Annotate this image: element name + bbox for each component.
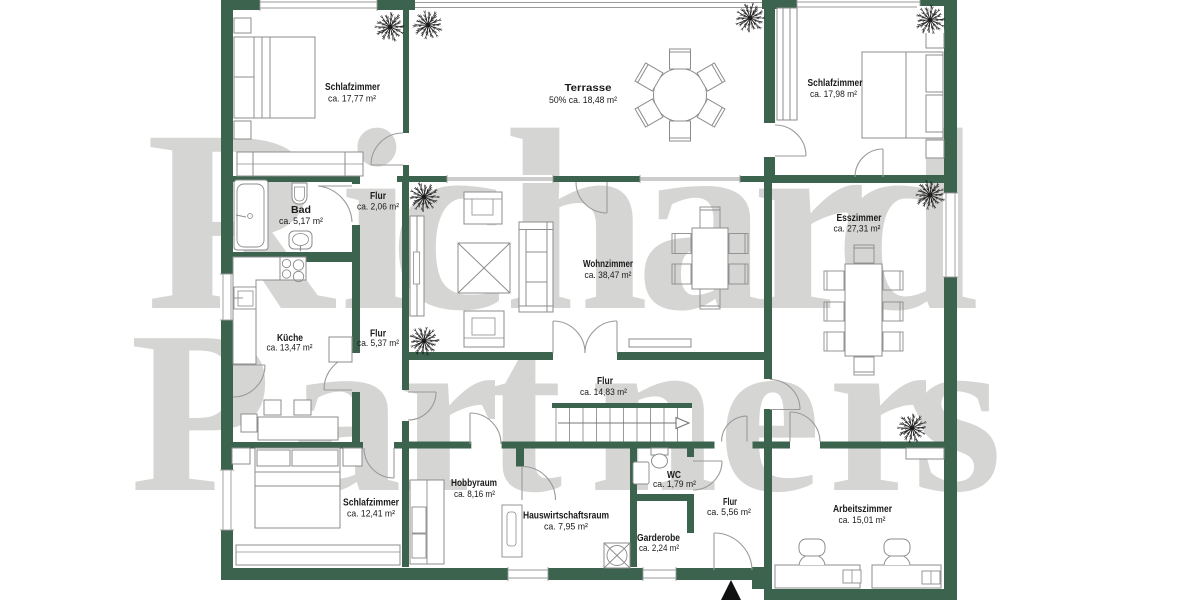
svg-text:ca. 2,06 m²: ca. 2,06 m²	[357, 202, 399, 212]
svg-text:ca. 13,47 m²: ca. 13,47 m²	[267, 343, 313, 353]
svg-text:ca. 5,37 m²: ca. 5,37 m²	[357, 338, 399, 348]
svg-text:Esszimmer: Esszimmer	[837, 213, 882, 224]
svg-text:ca. 27,31 m²: ca. 27,31 m²	[834, 224, 881, 234]
svg-text:ca. 14,83 m²: ca. 14,83 m²	[580, 387, 627, 397]
svg-text:ca. 1,79 m²: ca. 1,79 m²	[653, 479, 696, 489]
svg-text:Arbeitszimmer: Arbeitszimmer	[833, 504, 892, 515]
svg-text:Bad: Bad	[291, 205, 311, 216]
svg-text:Schlafzimmer: Schlafzimmer	[343, 498, 399, 509]
svg-text:Hauswirtschaftsraum: Hauswirtschaftsraum	[523, 511, 609, 522]
svg-text:Hobbyraum: Hobbyraum	[451, 478, 497, 489]
svg-text:ca. 7,95 m²: ca. 7,95 m²	[544, 522, 588, 532]
svg-text:Wohnzimmer: Wohnzimmer	[583, 259, 633, 270]
svg-text:Terrasse: Terrasse	[565, 83, 612, 94]
svg-text:50% ca. 18,48 m²: 50% ca. 18,48 m²	[549, 95, 617, 105]
svg-text:ca. 12,41 m²: ca. 12,41 m²	[347, 509, 395, 519]
svg-text:ca. 5,56 m²: ca. 5,56 m²	[707, 507, 751, 517]
svg-text:Flur: Flur	[370, 191, 386, 202]
svg-text:ca. 8,16 m²: ca. 8,16 m²	[454, 489, 495, 499]
svg-text:ca. 17,98 m²: ca. 17,98 m²	[810, 89, 857, 99]
svg-text:ca. 17,77 m²: ca. 17,77 m²	[328, 94, 376, 104]
svg-text:ca. 38,47 m²: ca. 38,47 m²	[585, 270, 632, 280]
svg-text:Flur: Flur	[597, 376, 613, 387]
svg-text:Schlafzimmer: Schlafzimmer	[808, 78, 863, 89]
svg-text:ca. 5,17 m²: ca. 5,17 m²	[279, 216, 323, 226]
svg-text:ca. 15,01 m²: ca. 15,01 m²	[839, 515, 886, 525]
svg-text:ca. 2,24 m²: ca. 2,24 m²	[639, 543, 679, 553]
svg-text:Schlafzimmer: Schlafzimmer	[325, 82, 380, 93]
